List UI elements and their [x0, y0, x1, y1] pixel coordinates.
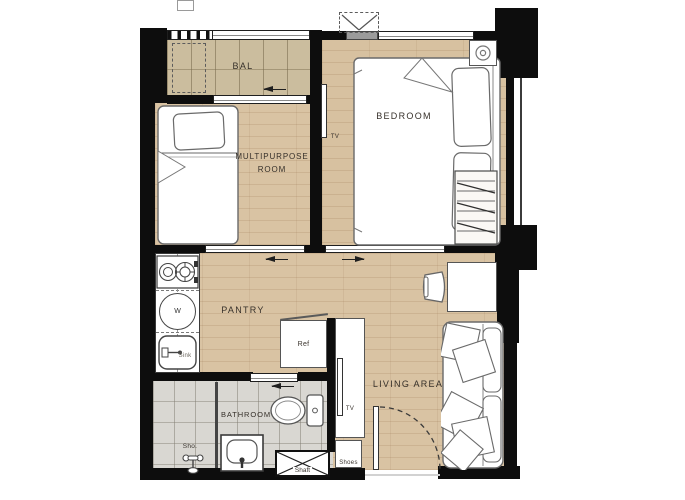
- shaft-label: Shaft: [293, 467, 312, 475]
- tv-panel-bedroom: [321, 84, 327, 138]
- wall: [307, 95, 322, 104]
- sofa: [441, 320, 505, 470]
- tv-living-label: TV: [343, 405, 357, 413]
- toilet: [268, 392, 328, 429]
- wall: [140, 28, 167, 103]
- multipurpose-room-label-line1: MULTIPURPOSE: [227, 150, 317, 163]
- ref-label: Ref: [298, 341, 310, 348]
- wall: [310, 30, 322, 253]
- wall: [155, 245, 205, 253]
- ac-unit-outline: [339, 12, 379, 33]
- shower-partition: [215, 382, 218, 468]
- wall: [327, 318, 335, 452]
- pantry-label: PANTRY: [200, 304, 286, 317]
- shoes-label: Shoes: [339, 459, 358, 467]
- balcony-label: BAL: [220, 60, 266, 73]
- sink-label: Sink: [172, 352, 198, 360]
- wall: [305, 245, 325, 253]
- shower-mixer: [179, 452, 207, 474]
- column-marker: [177, 0, 194, 11]
- wall: [167, 95, 213, 104]
- balcony-ac-outline: [172, 43, 206, 93]
- door-slide-arrow: [264, 86, 286, 93]
- multipurpose-room-label-line2: ROOM: [227, 163, 317, 176]
- shower-label: Sho.: [177, 443, 203, 451]
- bedroom-window: [378, 31, 474, 40]
- balcony-top-window: [212, 30, 310, 40]
- wall: [504, 340, 517, 472]
- tv-bedroom-label: TV: [328, 133, 342, 141]
- door-slide-arrow: [272, 383, 294, 390]
- ac-vanes-icon: [340, 13, 380, 34]
- wall: [140, 372, 253, 381]
- chair: [420, 271, 448, 303]
- entry-door-swing-arc: [379, 406, 441, 472]
- bathroom-sliding-door: [250, 373, 298, 382]
- stove-icon: [156, 255, 199, 289]
- balcony-sliding-door: [213, 95, 307, 104]
- shoes-cabinet: Shoes: [335, 440, 362, 468]
- door-slide-arrow: [342, 256, 364, 263]
- wall-edge-line: [520, 78, 522, 228]
- multipurpose-sliding-door: [205, 245, 305, 253]
- wardrobe-shelves: [454, 170, 498, 245]
- balcony-railing: [167, 30, 213, 40]
- wall: [140, 372, 153, 480]
- living-area-label: LIVING AREA: [356, 378, 460, 391]
- bedroom-label: BEDROOM: [354, 110, 454, 123]
- shaft: Shaft: [275, 450, 330, 477]
- washer-label: W: [174, 308, 181, 315]
- entry-threshold: [365, 474, 440, 476]
- refrigerator: Ref: [280, 320, 327, 368]
- lamp-icon: [474, 44, 492, 62]
- wall: [506, 78, 514, 228]
- floor-plan: BAL MULTIPURPOSE ROOM TV BEDROOM: [0, 0, 685, 500]
- desk: [447, 262, 497, 312]
- wall: [140, 100, 155, 375]
- basin-vanity: [220, 434, 264, 472]
- washing-machine: W: [159, 293, 196, 330]
- multipurpose-room-label: MULTIPURPOSE ROOM: [227, 150, 317, 176]
- door-slide-arrow: [266, 256, 288, 263]
